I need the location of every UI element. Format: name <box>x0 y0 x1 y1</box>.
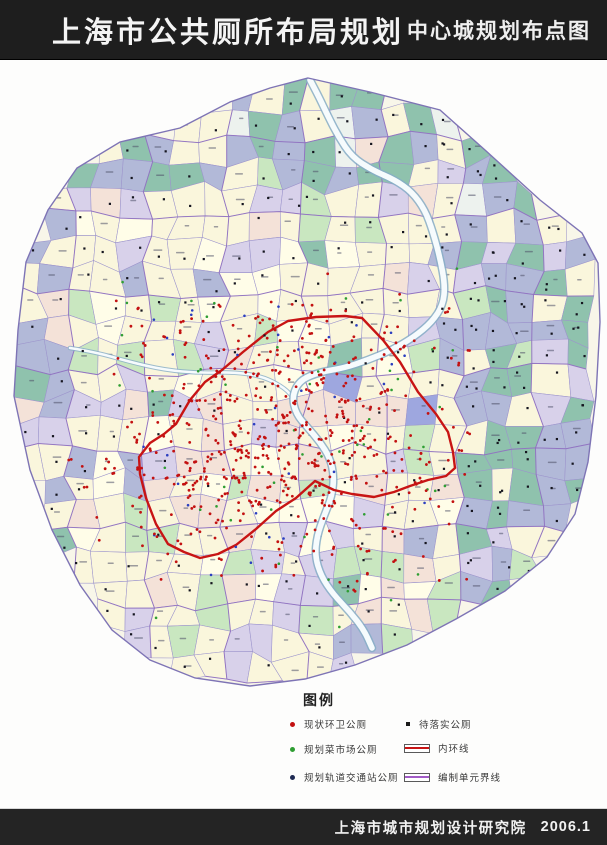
legend-label: 待落实公厕 <box>419 717 472 731</box>
planning-map-page: 上海市公共厕所布局规划 中心城规划布点图 图例 现状环卫公厕 规划菜市场公厕 规… <box>0 0 607 845</box>
page-title: 上海市公共厕所布局规划 <box>52 9 404 51</box>
legend-label: 现状环卫公厕 <box>304 717 367 731</box>
legend-item-inner-ring: 内环线 <box>404 741 470 755</box>
green-dot-icon <box>290 747 295 752</box>
credit-bar: 上海市城市规划设计研究院 2006.1 <box>0 808 607 845</box>
legend-label: 编制单元界线 <box>438 770 501 784</box>
legend-label: 规划菜市场公厕 <box>304 742 378 756</box>
black-dot-icon <box>406 722 410 726</box>
legend-item-rail-station-toilet: 规划轨道交通站公厕 <box>290 770 399 784</box>
map-layers <box>12 77 600 689</box>
legend-item-market-toilet: 规划菜市场公厕 <box>290 742 378 756</box>
legend-item-unit-boundary: 编制单元界线 <box>404 770 501 784</box>
legend-title: 图例 <box>303 690 335 710</box>
legend-label: 规划轨道交通站公厕 <box>304 770 399 784</box>
unit-boundary-line-icon <box>404 773 430 782</box>
map-date: 2006.1 <box>541 819 591 835</box>
navy-dot-icon <box>290 775 295 780</box>
title-bar: 上海市公共厕所布局规划 中心城规划布点图 <box>0 0 607 60</box>
legend-label: 内环线 <box>438 741 470 755</box>
institute-credit: 上海市城市规划设计研究院 <box>335 817 527 838</box>
legend-item-pending-toilet: 待落实公厕 <box>406 717 472 731</box>
map-subtitle: 中心城规划布点图 <box>407 15 591 45</box>
red-dot-icon <box>290 722 295 727</box>
inner-ring-line-icon <box>404 744 430 753</box>
legend-item-existing-toilet: 现状环卫公厕 <box>290 717 367 731</box>
